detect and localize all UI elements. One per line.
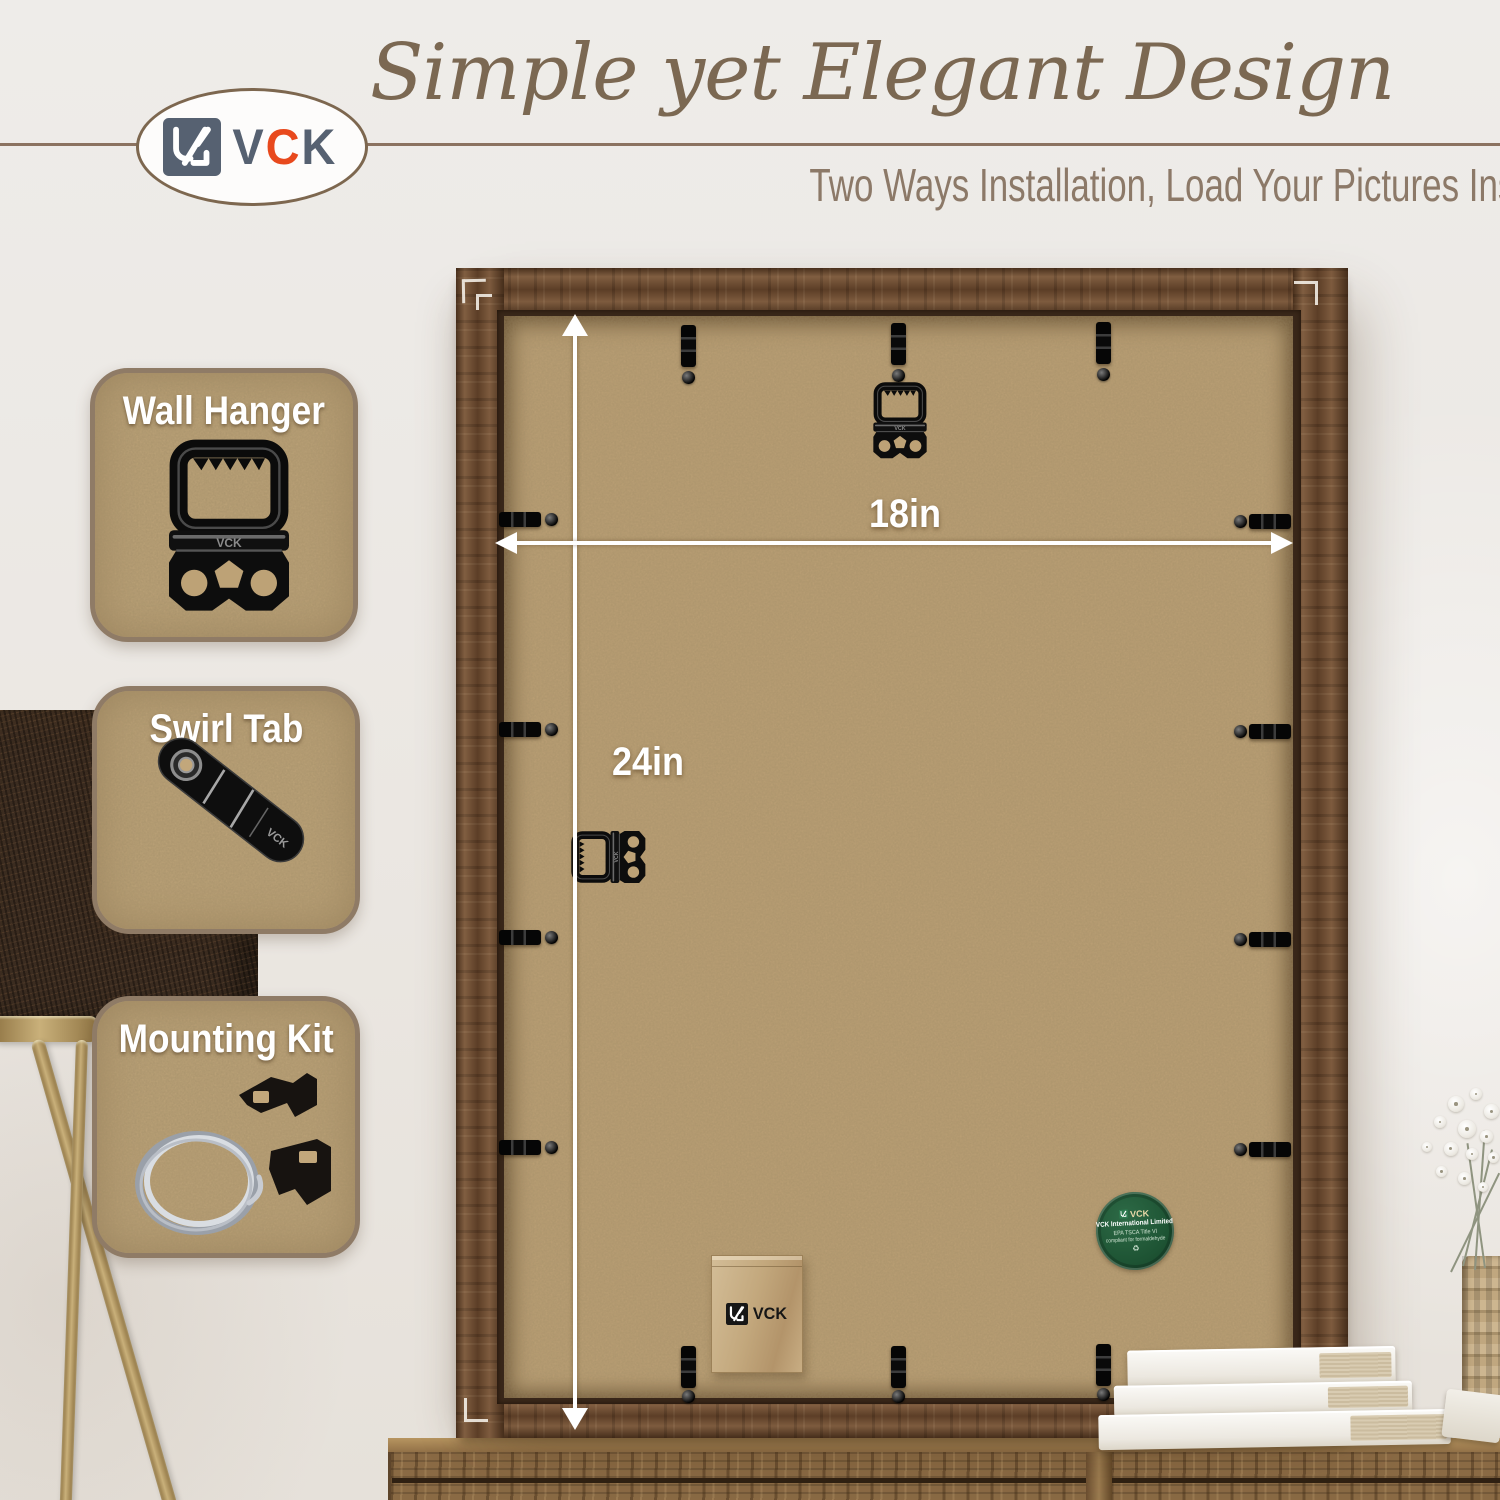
height-label-text: 24in xyxy=(612,740,684,785)
floor-lamp-arm xyxy=(0,1016,98,1042)
frame-rail-top xyxy=(456,268,1348,316)
bag-brand-text: VCK xyxy=(753,1304,787,1324)
mounting-kit-photo xyxy=(111,1065,351,1255)
sideboard-divider xyxy=(1086,1452,1112,1500)
book-under-basket xyxy=(1441,1389,1500,1444)
card-label: Mounting Kit xyxy=(97,1017,355,1062)
wall-hanger-photo xyxy=(157,439,301,619)
book-stack xyxy=(1097,1345,1459,1451)
card-label: Swirl Tab xyxy=(97,707,355,752)
page-subtitle-text: Two Ways Installation, Load Your Picture… xyxy=(809,158,1500,212)
vck-monogram-icon xyxy=(163,118,221,176)
card-label: Wall Hanger xyxy=(95,389,353,434)
page-title: Simple yet Elegant Design xyxy=(370,28,1310,118)
vck-monogram-icon xyxy=(1119,1210,1128,1219)
product-infographic: Simple yet Elegant Design Two Ways Insta… xyxy=(0,0,1500,1500)
logo-letter-k: K xyxy=(302,119,338,175)
feature-card-wall-hanger: Wall Hanger xyxy=(90,368,358,642)
wall-hanger-side xyxy=(571,825,649,889)
width-label: 18in xyxy=(838,492,972,537)
sticker-brand-text: VCK xyxy=(1130,1208,1150,1219)
logo-letter-v: V xyxy=(233,119,266,175)
feature-card-mounting-kit: Mounting Kit xyxy=(92,996,360,1258)
frame-rail-right xyxy=(1293,268,1348,1438)
hardware-paper-bag: VCK xyxy=(711,1255,803,1373)
babys-breath-flowers xyxy=(1400,1086,1500,1286)
width-label-text: 18in xyxy=(869,492,941,537)
logo-letter-c: C xyxy=(266,119,302,175)
vck-monogram-icon xyxy=(726,1303,748,1325)
brand-logo: VCK xyxy=(136,88,368,206)
sticker-company: VCK International Limited xyxy=(1096,1218,1173,1230)
corner-protector-icon xyxy=(464,1398,488,1422)
card-label-text: Wall Hanger xyxy=(123,389,325,434)
sideboard-drawer-seam xyxy=(392,1478,1500,1483)
page-subtitle: Two Ways Installation, Load Your Picture… xyxy=(560,158,1500,212)
sideboard-front xyxy=(388,1452,1500,1500)
sticker-brand-row: VCK xyxy=(1119,1208,1150,1220)
wall-hanger-top xyxy=(868,382,932,462)
height-label: 24in xyxy=(578,740,718,785)
book xyxy=(1098,1409,1451,1450)
corner-protector-icon xyxy=(1294,281,1318,305)
brand-logo-text: VCK xyxy=(233,118,338,176)
recycle-leaf-icon: ♻ xyxy=(1132,1244,1140,1254)
feature-card-swirl-tab: Swirl Tab xyxy=(92,686,360,934)
card-label-text: Mounting Kit xyxy=(118,1017,333,1062)
corner-protector-icon xyxy=(476,294,492,310)
